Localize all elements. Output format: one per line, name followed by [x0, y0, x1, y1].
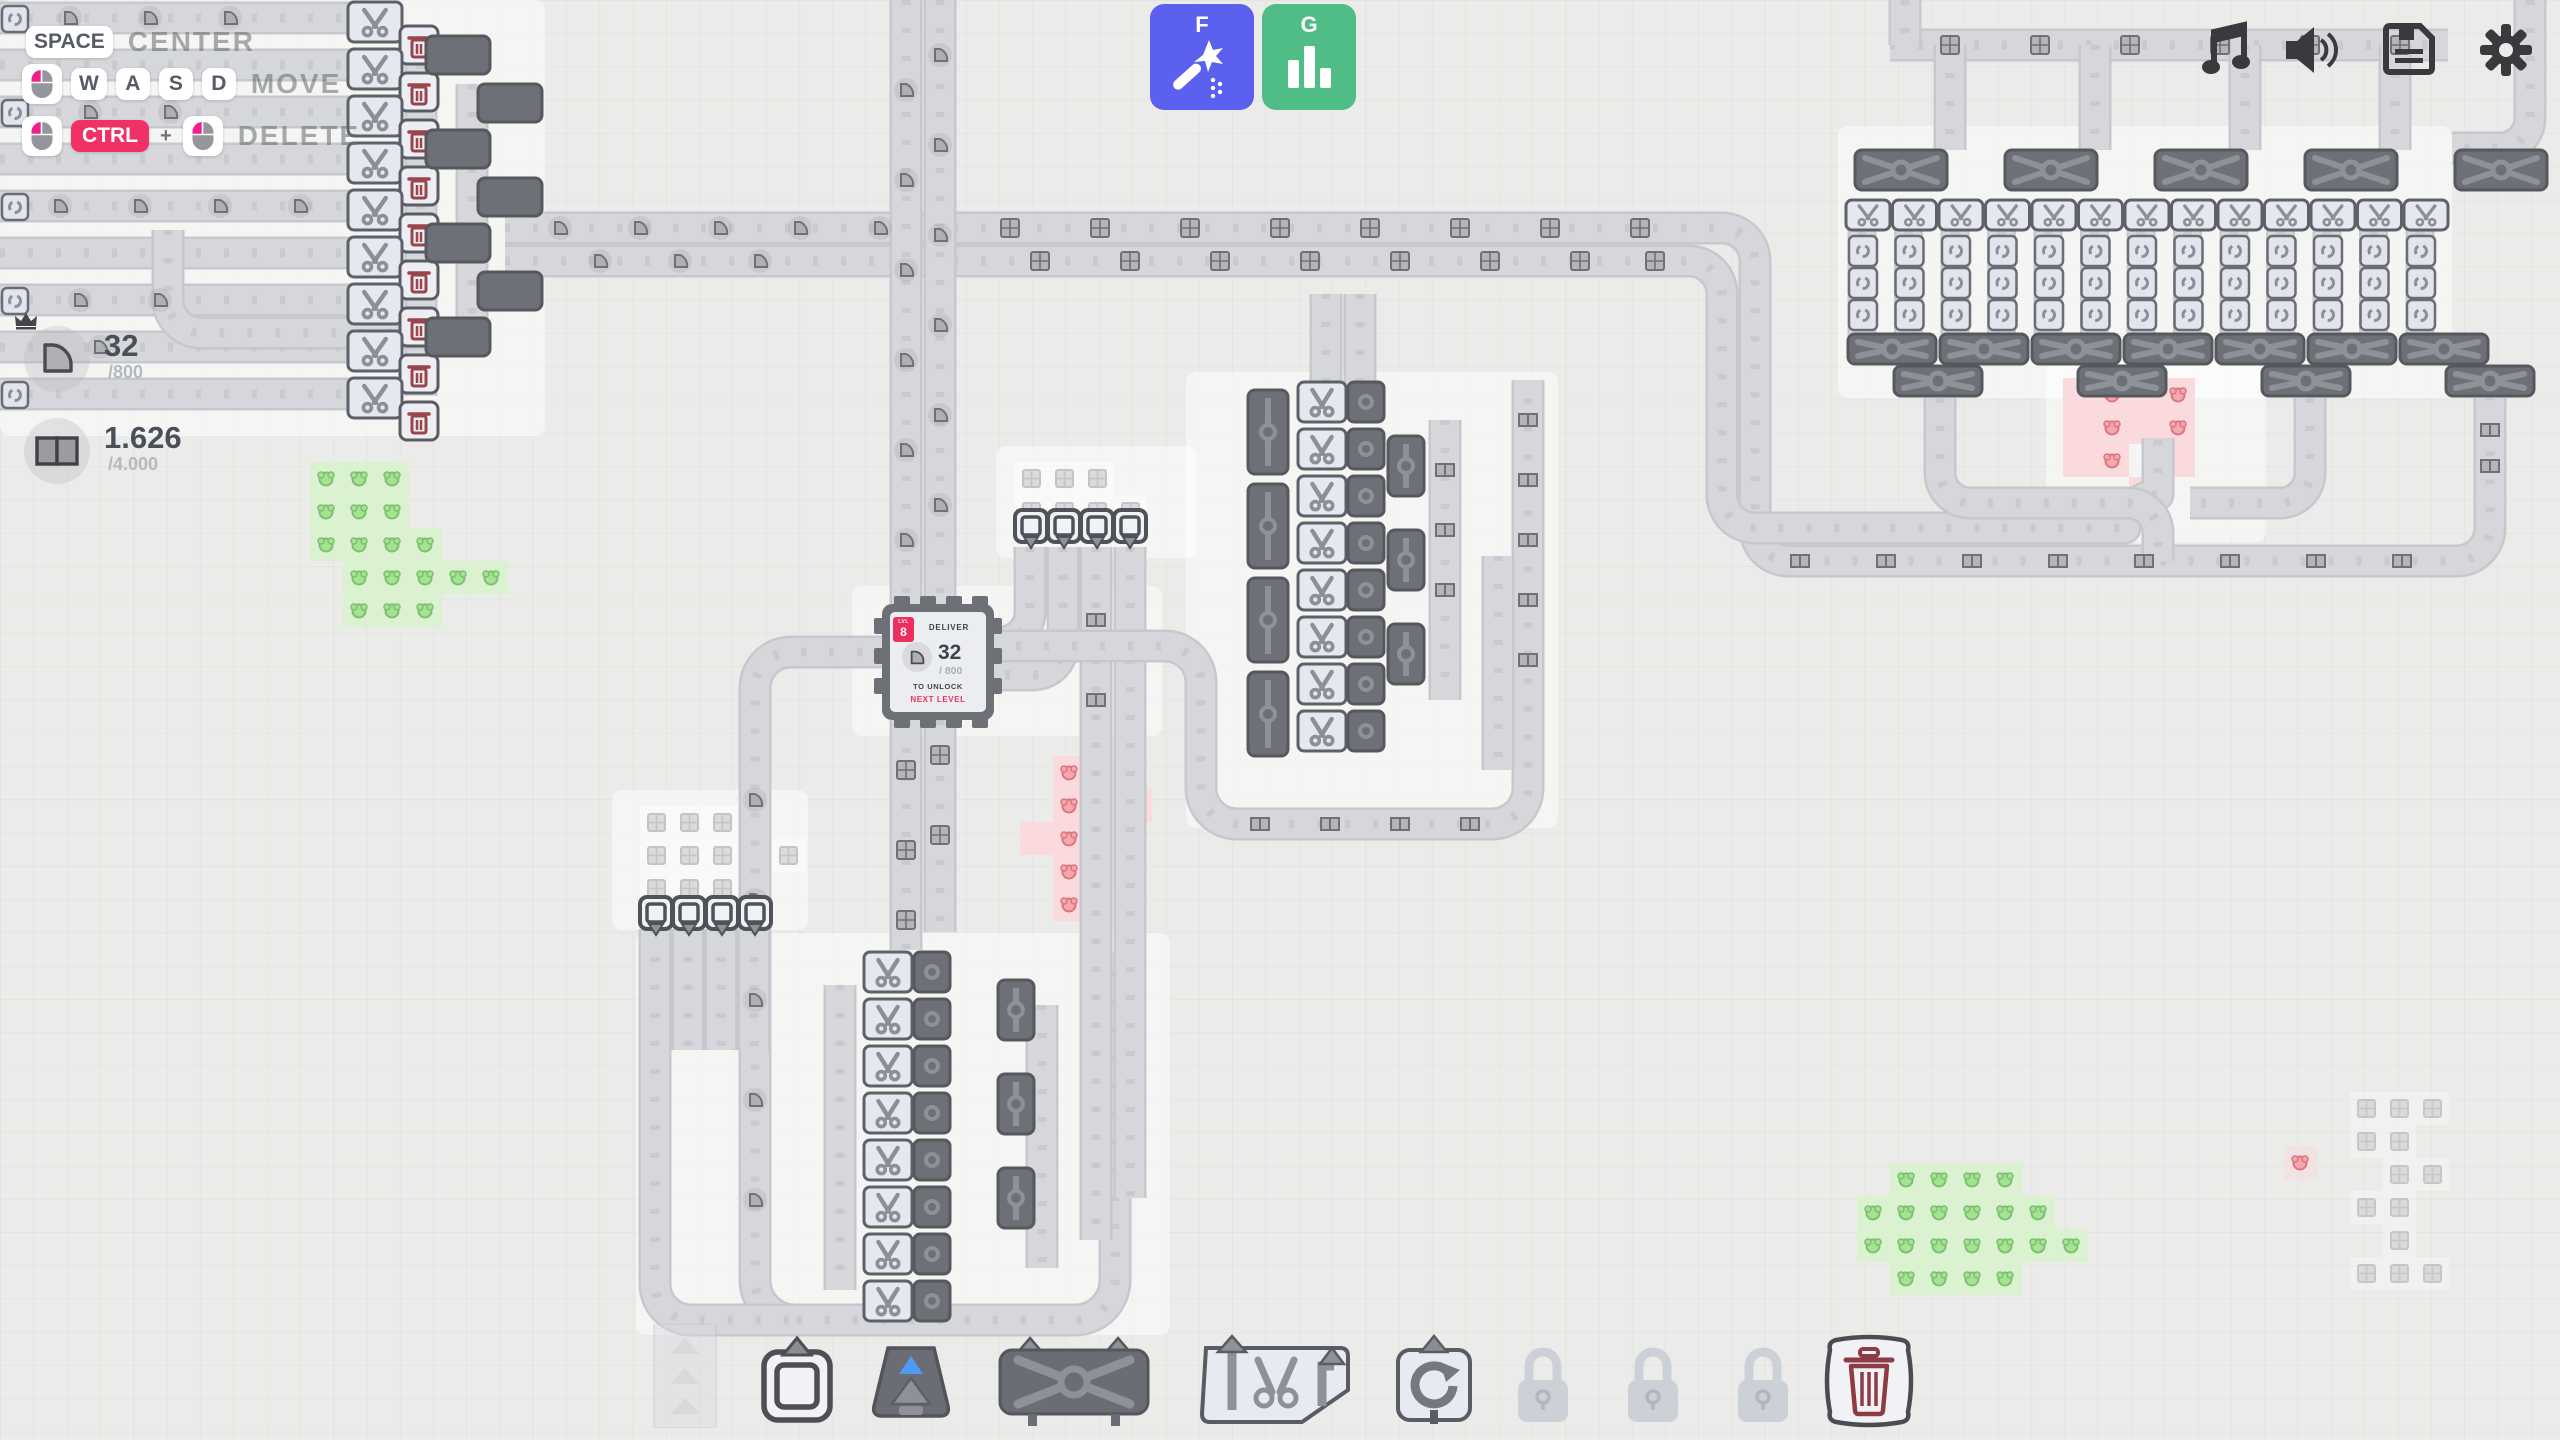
hint-move-label: MOVE [251, 68, 341, 100]
rotator-icon [1394, 1334, 1474, 1428]
s-keycap: S [159, 68, 193, 100]
mouse-left-click-icon [22, 64, 62, 104]
hint-row-delete: CTRL + DELETE [22, 116, 360, 156]
toolbar-slot-locked-3 [1732, 1332, 1794, 1428]
d-keycap: D [202, 68, 236, 100]
music-icon [2200, 20, 2256, 78]
toolbar-slot-cutter[interactable] [1196, 1332, 1350, 1428]
trash-icon [1824, 1334, 1914, 1428]
hub-unlock-label-2: NEXT LEVEL [890, 695, 986, 704]
hint-center-label: CENTER [128, 26, 255, 58]
hub-deliver-label: DELIVER [912, 623, 986, 632]
hint-row-move: W A S D MOVE [22, 64, 341, 104]
half-rect-shape-icon [34, 433, 80, 469]
lock-icon [1732, 1336, 1794, 1428]
toolbar-slot-trash[interactable] [1824, 1332, 1914, 1428]
buildings [2, 2, 2547, 1321]
belt-icon [652, 1324, 718, 1428]
pinned-shape-1-count: 32 [104, 328, 138, 364]
save-button[interactable] [2382, 22, 2436, 81]
pinned-shape-2-count: 1.626 [104, 420, 182, 456]
magic-wand-icon [1173, 38, 1231, 100]
g-key-label: G [1300, 12, 1317, 38]
save-icon [2382, 22, 2436, 76]
lock-icon [1622, 1336, 1684, 1428]
settings-button[interactable] [2478, 22, 2534, 83]
toolbar-slot-locked-2 [1622, 1332, 1684, 1428]
magic-wand-button[interactable]: F [1150, 4, 1254, 110]
statistics-button[interactable]: G [1262, 4, 1356, 110]
sound-toggle-button[interactable] [2284, 24, 2346, 81]
pinned-shape-1-goal: /800 [108, 362, 143, 383]
a-keycap: A [116, 68, 150, 100]
ctrl-keycap: CTRL [71, 120, 149, 152]
balancer-icon [998, 1334, 1150, 1428]
toolbar-slot-rotator[interactable] [1394, 1332, 1474, 1428]
toolbar-slot-extractor[interactable] [756, 1332, 838, 1428]
settings-gear-icon [2478, 22, 2534, 78]
music-toggle-button[interactable] [2200, 20, 2256, 83]
hint-row-center: SPACE CENTER [26, 26, 255, 58]
hub-goal-shape [902, 642, 932, 672]
quarter-pie-shape-icon [36, 338, 78, 380]
hub-goal-card: LVL 8 DELIVER 32 / 800 TO UNLOCK NEXT LE… [890, 612, 986, 712]
hub-delivered-count: 32 [938, 641, 961, 665]
bar-chart-icon [1283, 38, 1335, 96]
speaker-icon [2284, 24, 2346, 76]
extractor-icon [756, 1336, 838, 1428]
space-keycap: SPACE [26, 26, 113, 58]
mouse-left-click-icon [183, 116, 223, 156]
toolbar-slot-balancer[interactable] [998, 1332, 1150, 1428]
toolbar-slot-belt[interactable] [652, 1332, 718, 1428]
mouse-left-click-icon [22, 116, 62, 156]
f-key-label: F [1195, 12, 1208, 38]
pinned-shape-2 [24, 418, 90, 484]
quarter-pie-shape-icon [908, 648, 927, 667]
w-keycap: W [71, 68, 107, 100]
hub-goal-count: / 800 [939, 665, 962, 677]
hub-unlock-label-1: TO UNLOCK [890, 682, 986, 691]
pinned-shape-1 [24, 326, 90, 392]
pinned-shape-2-goal: /4.000 [108, 454, 158, 475]
toolbar-slot-locked-1 [1512, 1332, 1574, 1428]
level-badge: LVL 8 [893, 617, 914, 642]
hint-delete-label: DELETE [238, 120, 360, 152]
cutter-icon [1196, 1334, 1350, 1428]
lock-icon [1512, 1336, 1574, 1428]
game-viewport[interactable]: SPACE CENTER W A S D MOVE CTRL + [0, 0, 2560, 1440]
factory-canvas[interactable] [0, 0, 2560, 1440]
toolbar-slot-underground-belt[interactable] [868, 1332, 954, 1428]
underground-belt-icon [868, 1336, 954, 1428]
plus-sign: + [160, 125, 172, 148]
crown-icon [14, 312, 38, 335]
